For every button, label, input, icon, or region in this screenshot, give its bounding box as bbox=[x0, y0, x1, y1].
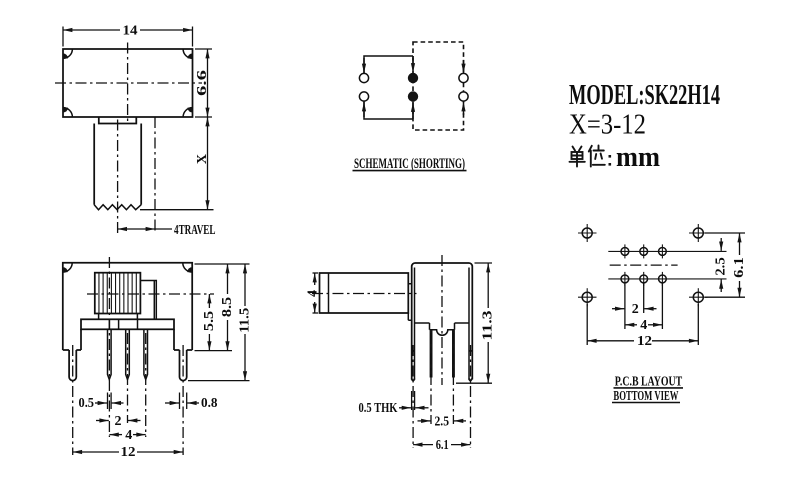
svg-text:6.1: 6.1 bbox=[436, 438, 449, 453]
svg-text:5.5: 5.5 bbox=[202, 311, 217, 331]
svg-text:6.1: 6.1 bbox=[732, 257, 747, 278]
svg-text:4TRAVEL: 4TRAVEL bbox=[174, 223, 216, 238]
svg-text:12: 12 bbox=[121, 445, 136, 460]
svg-text:X=3-12: X=3-12 bbox=[569, 110, 646, 141]
svg-text:mm: mm bbox=[616, 142, 660, 173]
svg-text:0.5 THK: 0.5 THK bbox=[359, 401, 398, 416]
svg-text:4: 4 bbox=[306, 290, 321, 297]
svg-text:14: 14 bbox=[123, 23, 138, 38]
svg-text:MODEL:SK22H14: MODEL:SK22H14 bbox=[569, 80, 720, 111]
svg-text:11.5: 11.5 bbox=[237, 308, 252, 333]
svg-text:11.3: 11.3 bbox=[481, 311, 496, 341]
svg-text:2: 2 bbox=[115, 414, 122, 429]
svg-text:X: X bbox=[195, 154, 210, 164]
svg-text:0.5: 0.5 bbox=[79, 396, 95, 411]
svg-text:4: 4 bbox=[640, 318, 647, 333]
svg-text:6.6: 6.6 bbox=[195, 70, 210, 96]
svg-text:4: 4 bbox=[125, 428, 132, 443]
svg-text:8.5: 8.5 bbox=[220, 297, 235, 317]
svg-text:12: 12 bbox=[637, 334, 652, 349]
svg-text:2.5: 2.5 bbox=[714, 257, 729, 275]
svg-text:2.5: 2.5 bbox=[435, 414, 450, 429]
svg-text:2: 2 bbox=[632, 302, 639, 317]
svg-text:0.8: 0.8 bbox=[201, 396, 218, 411]
